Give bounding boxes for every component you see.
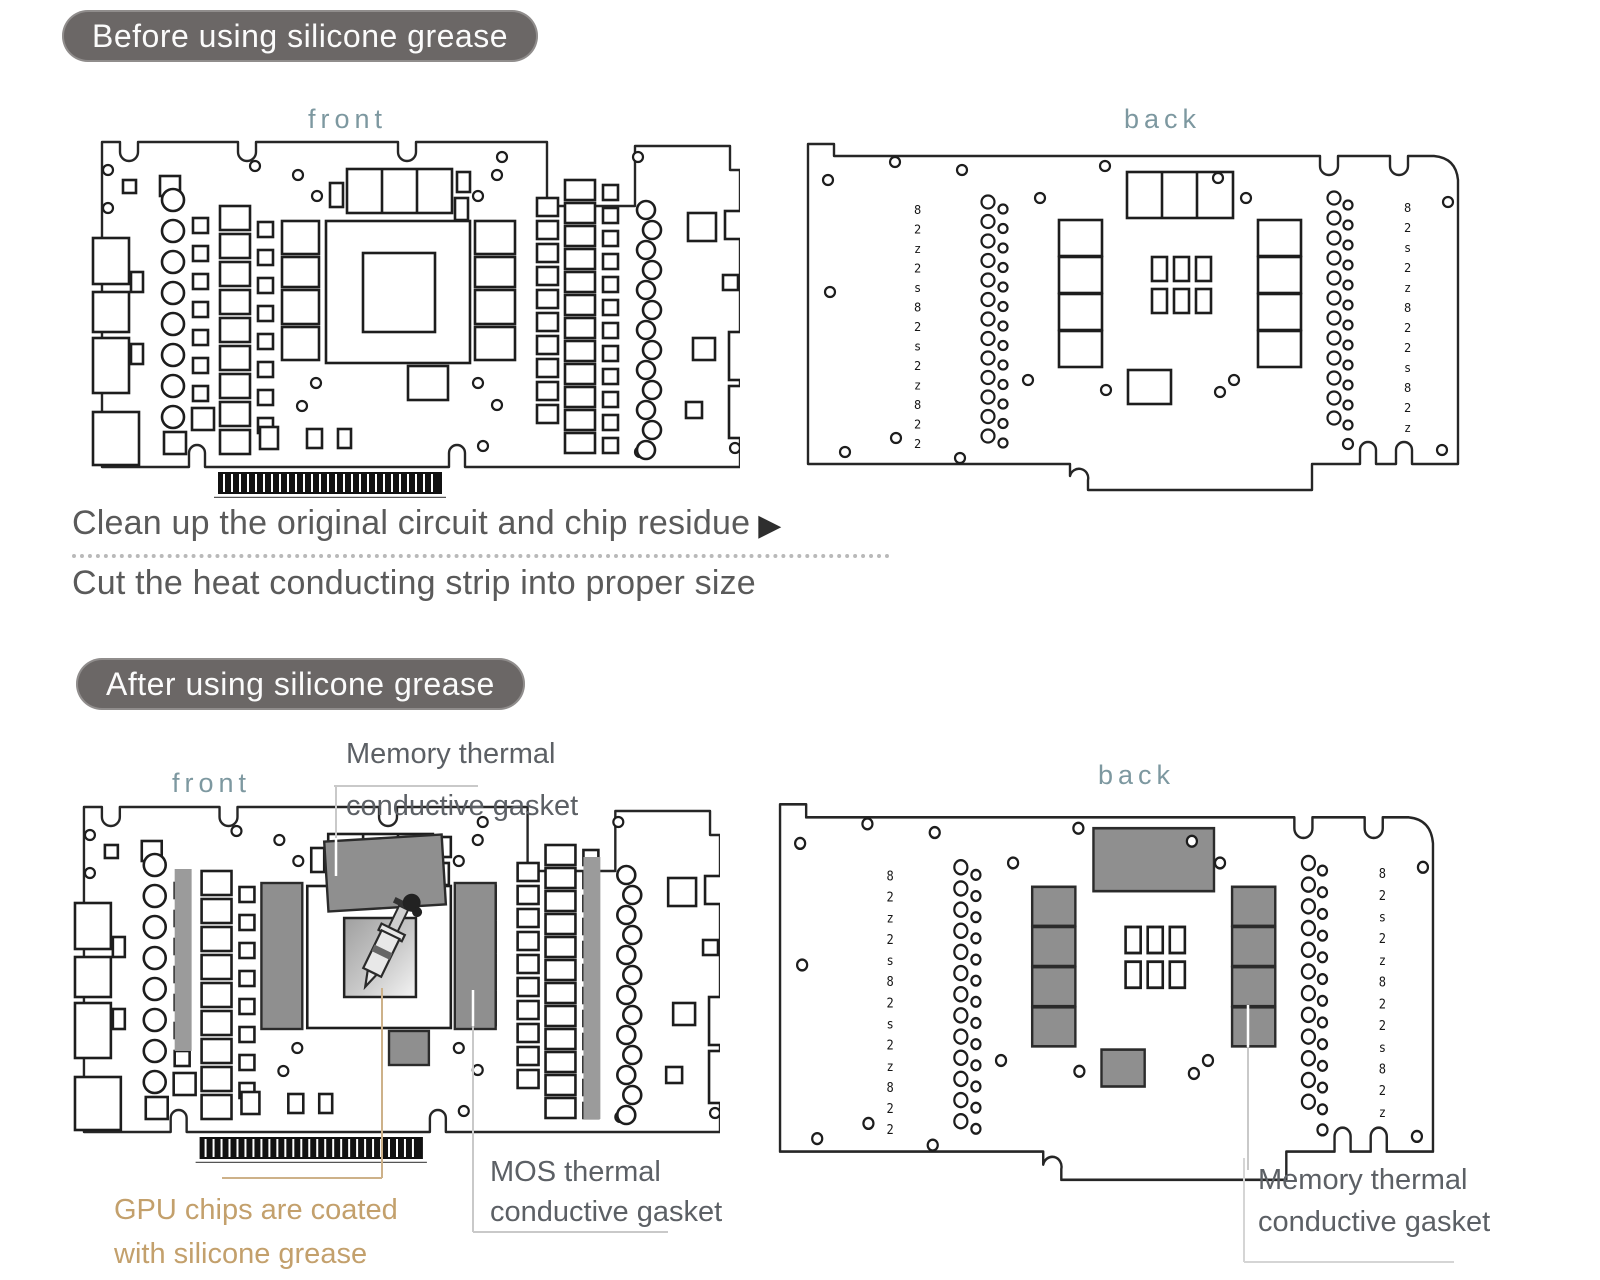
svg-text:2: 2	[914, 262, 921, 276]
mos-gasket-callout-line2: conductive gasket	[490, 1196, 722, 1229]
before-section-badge: Before using silicone grease	[62, 10, 538, 62]
silicone-grease-instructions-page: { "colors": { "badge_bg": "#6b6766", "ba…	[0, 0, 1600, 1280]
svg-text:8: 8	[1404, 301, 1411, 315]
dotted-divider	[72, 554, 890, 558]
step-caption-1: Clean up the original circuit and chip r…	[72, 504, 782, 543]
svg-text:8: 8	[914, 301, 921, 315]
svg-text:z: z	[1379, 953, 1386, 969]
svg-text:2: 2	[914, 359, 921, 373]
mos-gasket-callout-line1: MOS thermal	[490, 1156, 661, 1189]
svg-text:z: z	[1404, 421, 1411, 435]
svg-text:s: s	[1379, 909, 1386, 925]
svg-text:s: s	[887, 953, 894, 969]
svg-text:z: z	[887, 910, 894, 926]
pcb-front-before-diagram	[88, 140, 740, 498]
before-back-view-label: back	[1124, 104, 1201, 135]
after-front-view-label: front	[172, 768, 251, 799]
step-caption-2: Cut the heat conducting strip into prope…	[72, 564, 756, 603]
svg-text:s: s	[914, 340, 921, 354]
pcb-back-after-diagram: 82z2s82s2z82282s2z822s82z	[772, 800, 1437, 1182]
svg-text:8: 8	[887, 868, 894, 884]
svg-text:2: 2	[914, 437, 921, 451]
svg-text:2: 2	[1404, 341, 1411, 355]
svg-text:2: 2	[1379, 1018, 1386, 1034]
after-back-view-label: back	[1098, 760, 1175, 791]
svg-text:2: 2	[1404, 221, 1411, 235]
svg-text:z: z	[887, 1058, 894, 1074]
svg-text:z: z	[1379, 1104, 1386, 1120]
svg-text:s: s	[887, 1016, 894, 1032]
memory-gasket-back-callout-line2: conductive gasket	[1258, 1206, 1490, 1239]
svg-text:2: 2	[914, 320, 921, 334]
svg-text:8: 8	[914, 398, 921, 412]
svg-text:s: s	[1379, 1039, 1386, 1055]
svg-text:8: 8	[1379, 866, 1386, 882]
pcb-back-before-diagram: 82z2s82s2z82282s2z822s82z	[800, 140, 1462, 492]
step-caption-1-text: Clean up the original circuit and chip r…	[72, 504, 750, 542]
svg-text:s: s	[1404, 361, 1411, 375]
svg-text:s: s	[1404, 241, 1411, 255]
svg-text:2: 2	[887, 1122, 894, 1138]
svg-text:2: 2	[887, 1101, 894, 1117]
svg-text:2: 2	[1379, 931, 1386, 947]
svg-text:s: s	[914, 281, 921, 295]
svg-text:z: z	[914, 379, 921, 393]
svg-text:2: 2	[1404, 321, 1411, 335]
svg-text:2: 2	[1379, 1083, 1386, 1099]
svg-text:8: 8	[1379, 1061, 1386, 1077]
pcb-front-after-diagram	[70, 805, 720, 1163]
svg-text:2: 2	[914, 223, 921, 237]
after-section-badge: After using silicone grease	[76, 658, 525, 710]
svg-text:2: 2	[887, 889, 894, 905]
svg-text:8: 8	[1379, 974, 1386, 990]
svg-text:2: 2	[1404, 401, 1411, 415]
memory-gasket-front-callout-line2: conductive gasket	[346, 790, 578, 823]
before-front-view-label: front	[308, 104, 387, 135]
gpu-grease-callout-line2: with silicone grease	[114, 1238, 367, 1271]
svg-text:2: 2	[914, 418, 921, 432]
svg-text:2: 2	[1379, 996, 1386, 1012]
memory-gasket-front-callout-line1: Memory thermal	[346, 738, 556, 771]
svg-text:2: 2	[887, 995, 894, 1011]
memory-gasket-back-callout-line1: Memory thermal	[1258, 1164, 1468, 1197]
svg-text:z: z	[914, 242, 921, 256]
svg-text:8: 8	[1404, 381, 1411, 395]
svg-text:2: 2	[1404, 261, 1411, 275]
gpu-grease-callout-line1: GPU chips are coated	[114, 1194, 398, 1227]
svg-text:z: z	[1404, 281, 1411, 295]
svg-text:8: 8	[914, 203, 921, 217]
svg-text:8: 8	[887, 1079, 894, 1095]
arrow-right-icon: ▶	[758, 509, 781, 542]
svg-text:8: 8	[887, 974, 894, 990]
svg-text:2: 2	[887, 1037, 894, 1053]
svg-text:2: 2	[887, 931, 894, 947]
svg-text:2: 2	[1379, 887, 1386, 903]
svg-text:8: 8	[1404, 201, 1411, 215]
